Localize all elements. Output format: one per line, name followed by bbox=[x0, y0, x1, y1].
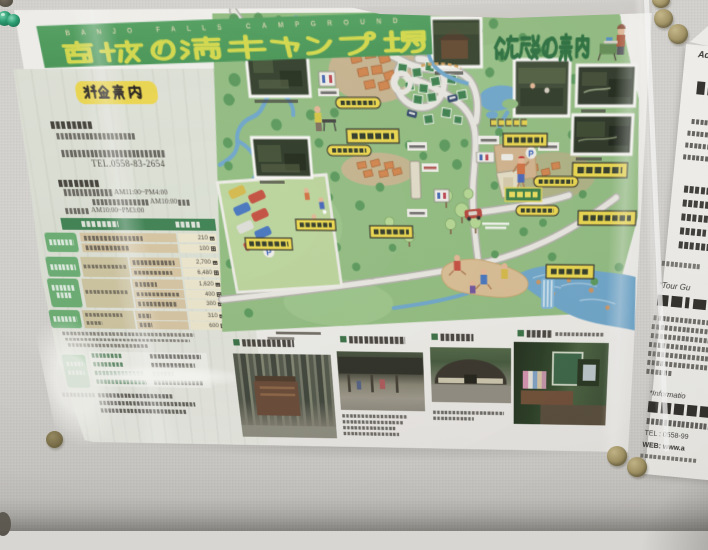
svg-text:P: P bbox=[528, 149, 534, 159]
